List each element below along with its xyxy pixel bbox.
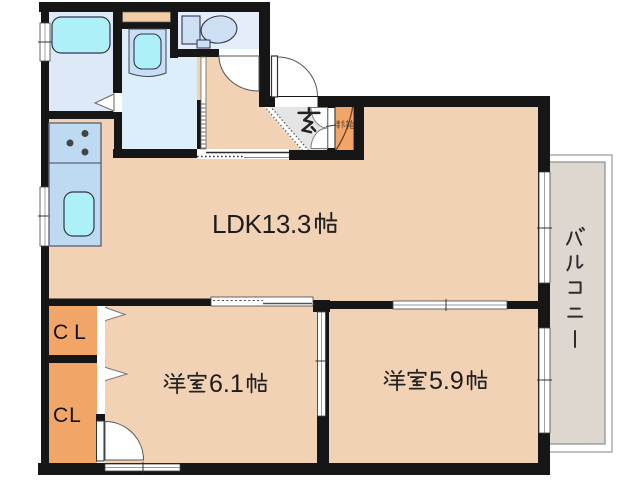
svg-text:5.9: 5.9: [429, 367, 464, 395]
svg-text:6.1: 6.1: [209, 370, 244, 398]
svg-text:CL: CL: [53, 404, 82, 427]
svg-text:LDK13.3: LDK13.3: [212, 209, 311, 239]
svg-text:CL: CL: [53, 321, 92, 344]
